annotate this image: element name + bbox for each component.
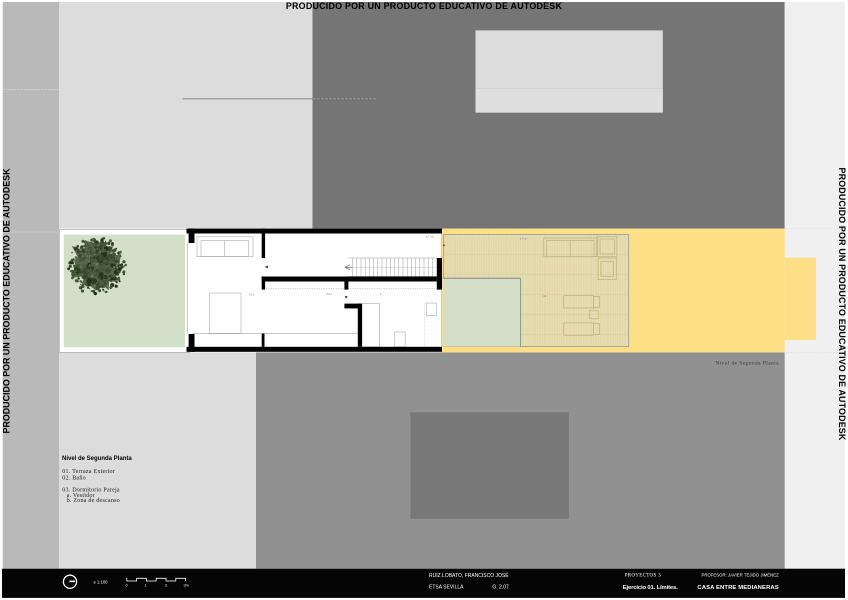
- svg-text:PRODUCIDO POR UN PRODUCTO EDUC: PRODUCIDO POR UN PRODUCTO EDUCATIVO DE A…: [1, 168, 11, 434]
- svg-text:ETSA SEVILLA: ETSA SEVILLA: [429, 584, 464, 590]
- svg-text:3m: 3m: [184, 584, 189, 588]
- svg-text:03.: 03.: [543, 294, 547, 298]
- svg-text:PROFESOR: JAVIER TEJIDO JIMÉNE: PROFESOR: JAVIER TEJIDO JIMÉNEZ: [702, 573, 780, 578]
- svg-text:G. 2.07: G. 2.07: [492, 584, 509, 590]
- svg-text:2: 2: [165, 584, 167, 588]
- svg-text:Nivel de Segunda Planta: Nivel de Segunda Planta: [716, 361, 780, 367]
- svg-text:a 7 m+: a 7 m+: [520, 236, 528, 240]
- svg-text:Nivel de Segunda Planta: Nivel de Segunda Planta: [62, 456, 132, 462]
- svg-text:e 1:100: e 1:100: [94, 579, 109, 584]
- svg-text:02. Baño: 02. Baño: [62, 475, 86, 481]
- svg-text:PROYECTOS 3: PROYECTOS 3: [625, 573, 661, 579]
- svg-text:b.: b.: [380, 292, 382, 296]
- svg-text:PRODUCIDO POR UN PRODUCTO EDUC: PRODUCIDO POR UN PRODUCTO EDUCATIVO DE A…: [837, 168, 847, 441]
- svg-text:01. Terraza Exterior: 01. Terraza Exterior: [62, 469, 115, 475]
- svg-text:b. Zona de descanso: b. Zona de descanso: [67, 498, 120, 504]
- svg-text:0: 0: [126, 584, 128, 588]
- svg-text:RUIZ LOBATO, FRANCISCO JOSÉ: RUIZ LOBATO, FRANCISCO JOSÉ: [429, 572, 509, 579]
- svg-text:a 7 m+: a 7 m+: [426, 235, 434, 239]
- svg-text:Ejercicio 01. Límites.: Ejercicio 01. Límites.: [623, 585, 678, 591]
- svg-text:03 a.: 03 a.: [249, 293, 255, 297]
- svg-text:1: 1: [145, 584, 147, 588]
- svg-text:03 a.: 03 a.: [327, 292, 333, 296]
- svg-text:CASA ENTRE MEDIANERAS: CASA ENTRE MEDIANERAS: [697, 585, 778, 591]
- svg-text:PRODUCIDO POR UN PRODUCTO EDUC: PRODUCIDO POR UN PRODUCTO EDUCATIVO DE A…: [286, 1, 563, 11]
